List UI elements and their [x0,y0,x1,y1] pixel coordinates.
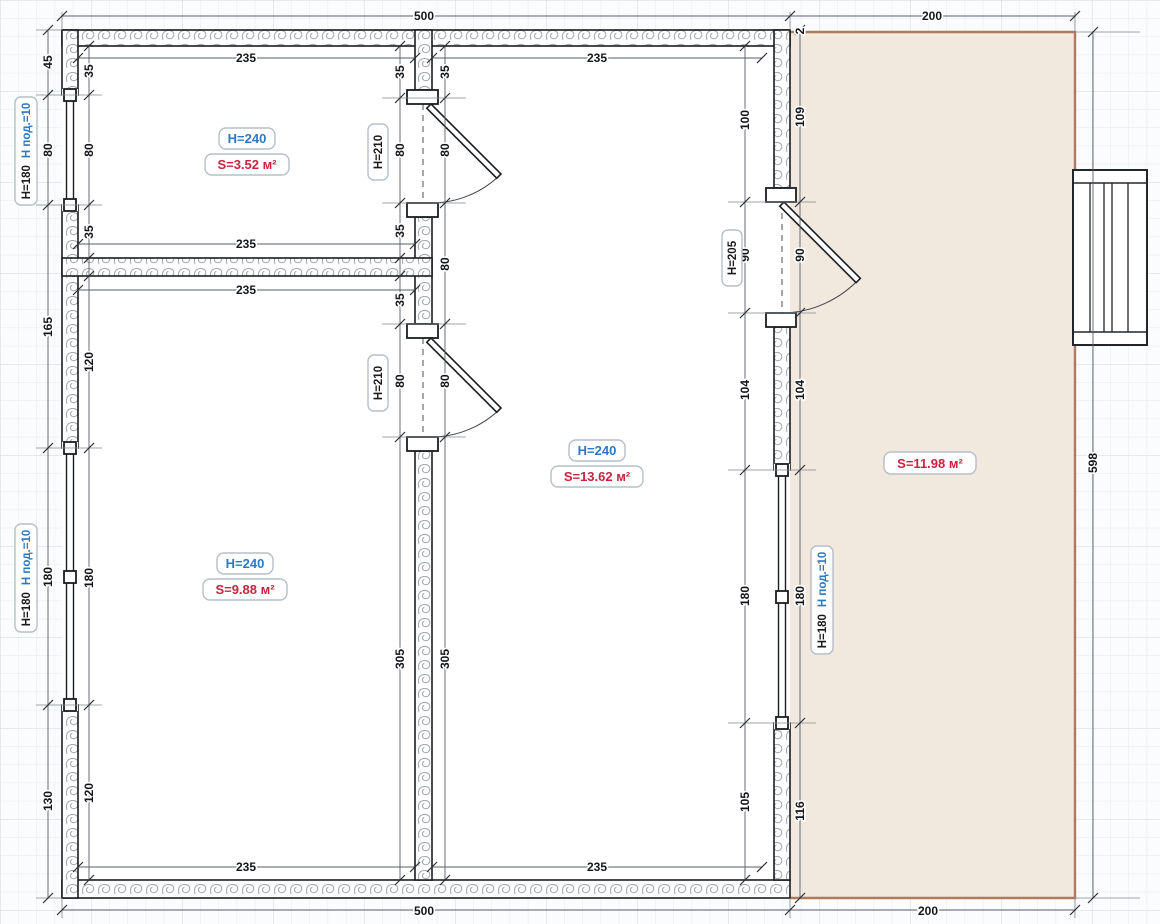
terrace-area-label: S=11.98 м² [897,456,963,471]
dim-label: 80 [82,143,96,157]
dim-label: 305 [438,649,452,669]
dim-label: 598 [1086,453,1100,473]
dim-label: 104 [793,380,807,400]
window-h-value: H=180 [21,592,33,626]
dim-label: 500 [414,9,434,23]
dim-label: 200 [918,904,938,918]
window-sill-value: H под.=10 [817,552,829,607]
dim-label: 2 [793,27,807,34]
dim-label: 120 [82,783,96,803]
dim-label: 80 [393,143,407,157]
window-height-label: H=180H под.=10 [21,103,33,200]
dim-label: 235 [236,51,256,65]
window-opening [62,89,78,211]
room-area-label: S=3.52 м² [217,157,277,172]
wall-right-seg3[interactable] [774,723,790,880]
window-h-value: H=180 [817,614,829,648]
dim-label: 116 [793,801,807,821]
door-jamb [407,324,438,338]
floor-plan-canvas: 500 200 500 200 235 235 235 235 235 235 … [0,0,1160,924]
floor-plan-svg: 500 200 500 200 235 235 235 235 235 235 … [0,0,1160,924]
wall-left-seg1[interactable] [62,30,78,95]
window-left-top[interactable] [62,89,78,211]
window-left-middle[interactable] [62,442,78,711]
window-h-value: H=180 [21,165,33,199]
window-sill-value: H под.=10 [21,530,33,585]
dim-label: 130 [41,791,55,811]
dim-label: 35 [393,224,407,238]
wall-right-seg1[interactable] [774,30,790,188]
dim-label: 109 [793,107,807,127]
dim-label: 104 [738,380,752,400]
dim-label: 80 [393,374,407,388]
dim-label: 45 [41,55,55,69]
door-height-label: H=205 [727,240,739,275]
room-height-label: H=240 [228,131,267,146]
dim-label: 105 [738,792,752,812]
dim-label: 90 [793,248,807,262]
window-height-label: H=180H под.=10 [817,552,829,649]
room-bottom-left[interactable] [78,276,415,880]
wall-left-seg2[interactable] [62,205,78,448]
dim-label: 80 [438,257,452,271]
window-node [776,591,788,603]
window-node [64,571,76,583]
wall-interior-horizontal[interactable] [62,258,432,276]
dim-label: 120 [82,352,96,372]
wall-middle-seg3[interactable] [415,451,432,880]
dim-label: 35 [438,65,452,79]
window-height-label: H=180H под.=10 [21,530,33,627]
dim-label: 80 [438,374,452,388]
dim-label: 235 [236,237,256,251]
dim-label: 180 [82,568,96,588]
door-jamb [766,313,796,327]
dim-label: 500 [414,904,434,918]
room-top-left[interactable] [78,46,415,258]
door-height-label: H=210 [373,135,385,169]
window-sill-value: H под.=10 [21,103,33,158]
dim-label: 35 [393,65,407,79]
stairs[interactable] [1073,170,1147,345]
wall-bottom[interactable] [62,880,790,898]
room-middle[interactable] [432,46,762,880]
wall-right-seg2[interactable] [774,327,790,470]
dim-label: 180 [738,586,752,606]
dim-label: 235 [587,51,607,65]
room-area-label: S=13.62 м² [564,469,631,484]
dim-label: 80 [41,143,55,157]
dim-label: 235 [587,860,607,874]
dim-label: 165 [41,317,55,337]
dim-label: 180 [41,567,55,587]
room-height-label: H=240 [226,556,265,571]
stairs-outline [1073,170,1147,345]
dim-label: 35 [82,64,96,78]
dim-label: 235 [236,283,256,297]
dim-label: 35 [393,293,407,307]
room-area-label: S=9.88 м² [215,582,275,597]
dim-label: 80 [438,143,452,157]
dim-label: 235 [236,860,256,874]
dim-label: 305 [393,649,407,669]
door-height-label: H=210 [373,366,385,400]
door-jamb [407,203,438,217]
window-right[interactable] [774,464,790,729]
door-jamb [766,188,796,202]
dim-label: 200 [922,9,942,23]
room-height-label: H=240 [578,443,617,458]
door-jamb [407,437,438,451]
dim-label: 35 [82,225,96,239]
dim-label: 100 [738,110,752,130]
dim-label: 180 [793,586,807,606]
door-jamb [407,90,438,104]
